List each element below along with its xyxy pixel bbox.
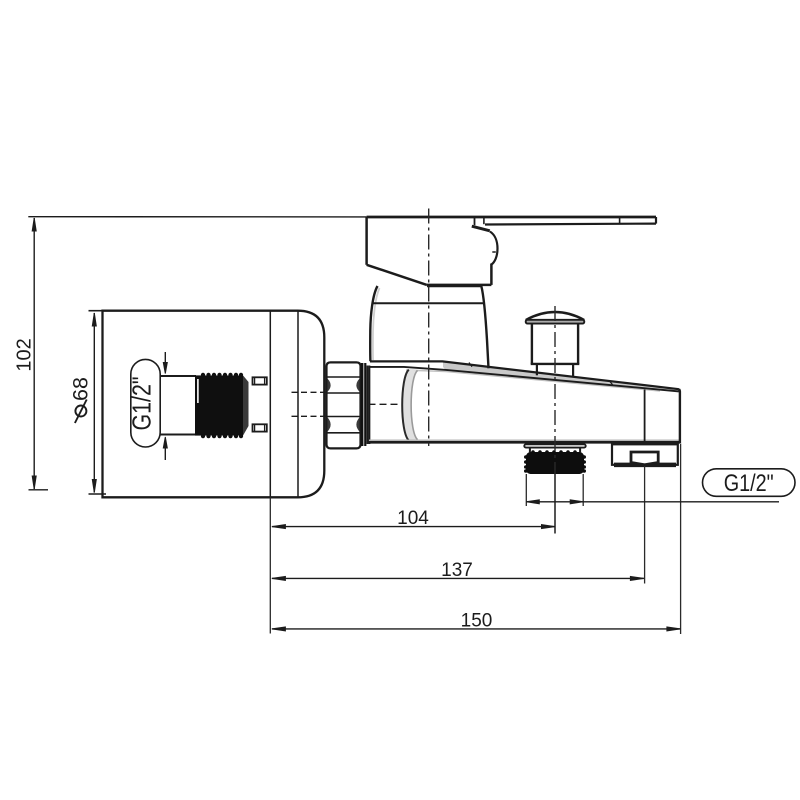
svg-text:137: 137 [441, 560, 473, 581]
svg-text:104: 104 [397, 508, 429, 529]
svg-text:G1/2": G1/2" [127, 377, 157, 431]
svg-text:102: 102 [14, 338, 36, 371]
svg-text:68: 68 [69, 377, 93, 401]
svg-text:150: 150 [461, 610, 493, 631]
svg-text:G1/2": G1/2" [724, 470, 774, 497]
